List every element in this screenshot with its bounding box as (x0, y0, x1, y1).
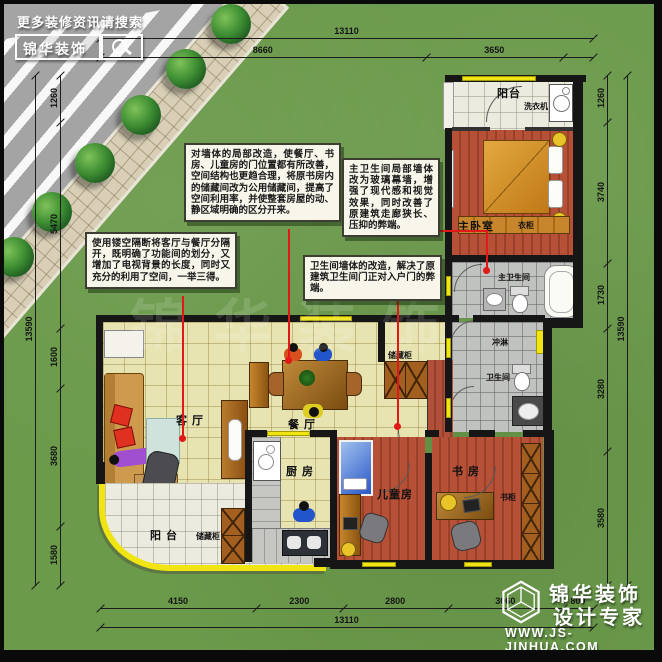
dim-label: 3650 (426, 45, 563, 55)
tv-wall (221, 400, 248, 479)
balcony-cabinet (221, 535, 245, 564)
dim-label: 13590 (24, 309, 34, 349)
bookcase-cell (521, 503, 541, 535)
tree (121, 95, 161, 135)
search-button[interactable] (101, 34, 143, 60)
header-brand: 锦华装饰 (23, 39, 87, 59)
wall (310, 430, 337, 437)
bed (483, 140, 550, 214)
wall (573, 78, 583, 328)
leader-line (288, 229, 290, 360)
room-label-bookcase: 书柜 (500, 492, 516, 503)
dim-label: 3580 (596, 498, 606, 538)
room-label-shower: 冲淋 (492, 337, 508, 348)
dim-line (627, 75, 628, 586)
balcony-cabinet (221, 508, 245, 537)
frame-top (0, 0, 662, 4)
frame-bottom (0, 650, 662, 662)
room-label-storage-balcony: 储藏柜 (196, 531, 220, 542)
room-label-kitchen: 厨 房 (286, 463, 314, 479)
search-icon (112, 39, 127, 54)
dim-tick (31, 582, 39, 590)
bookcase-cell (521, 443, 541, 475)
dim-label: 8660 (100, 45, 426, 55)
fridge (253, 441, 281, 481)
dining-chair (268, 372, 284, 396)
room-label-washer: 洗衣机 (524, 101, 548, 112)
search-icon-handle (124, 48, 132, 55)
wall (445, 255, 583, 262)
dim-label: 3740 (596, 172, 606, 212)
kitchen-sink (282, 530, 328, 556)
dim-label: 4150 (100, 596, 256, 606)
dim-label: 13590 (616, 309, 626, 349)
kids-stool (341, 542, 356, 557)
leader-dot (179, 435, 186, 442)
dim-label: 1260 (49, 78, 59, 118)
dining-chair (346, 372, 362, 396)
wall (544, 430, 554, 567)
room-label-bath: 卫生间 (486, 372, 510, 383)
window-kids (362, 562, 396, 567)
dim-line (100, 57, 593, 58)
sideboard (249, 362, 269, 408)
nightstand (552, 132, 567, 147)
dim-label: 13110 (100, 26, 593, 36)
leader-dot (483, 267, 490, 274)
wall (245, 430, 267, 437)
annotation-box-3: 主卫生间局部墙体改为玻璃幕墙，增强了现代感和视觉效果，同时改善了原建筑走廊狭长、… (342, 158, 440, 237)
storage-cabinet (384, 361, 407, 399)
dim-label: 3680 (49, 436, 59, 476)
kitchen-slider (267, 431, 310, 436)
wall (473, 315, 545, 322)
leader-dot (394, 423, 401, 430)
person-kitchen (293, 508, 315, 522)
dim-tick (56, 582, 64, 590)
table-plant (299, 370, 315, 386)
storage-cabinet (405, 361, 428, 399)
wall (445, 128, 452, 262)
room-label-master-bedroom: 主卧室 (458, 218, 494, 234)
room-label-study: 书 房 (452, 463, 480, 479)
dim-line (35, 75, 36, 586)
header-tagline: 更多装修资讯请搜索 (17, 12, 143, 31)
leader-line (436, 230, 487, 232)
leader-dot (285, 357, 292, 364)
dim-line (60, 75, 61, 586)
toilet (514, 372, 530, 391)
bookcase-cell (521, 473, 541, 505)
door-panel (446, 398, 451, 418)
pillow (548, 180, 563, 208)
room-label-master-bath: 主卫生间 (498, 272, 530, 283)
window-balcony-top (462, 76, 536, 81)
dining-table (282, 360, 348, 410)
room-label-kids: 儿童房 (377, 486, 413, 502)
ledge (443, 82, 454, 130)
leader-line (486, 230, 488, 270)
room-label-balcony-top: 阳台 (497, 85, 521, 101)
annotation-box-1: 对墙体的局部改造，使餐厅、书房、儿童房的门位置都有所改善，空间结构也更趋合理，将… (184, 143, 341, 222)
leader-line (397, 297, 399, 426)
wall (469, 430, 495, 437)
wall (425, 430, 439, 437)
wall (425, 453, 432, 562)
sink-pedestal (483, 288, 506, 311)
pillow (548, 146, 563, 174)
tree (166, 49, 206, 89)
wall (96, 322, 103, 470)
pillow-red (113, 426, 136, 449)
dim-label: 1580 (49, 535, 59, 575)
room-label-living: 客 厅 (176, 412, 204, 428)
wall (96, 462, 105, 484)
dim-label: 1260 (596, 78, 606, 118)
study-stool (440, 494, 457, 511)
wall (543, 322, 552, 437)
washing-machine (549, 84, 573, 122)
vanity (512, 396, 544, 426)
kids-bed (339, 440, 373, 496)
tree (75, 143, 115, 183)
room-label-balcony-bottom: 阳 台 (150, 527, 178, 543)
dim-label: 2800 (343, 596, 448, 606)
wall (330, 437, 337, 562)
dim-line (607, 75, 608, 586)
balcony-divider (452, 127, 490, 131)
window-study (464, 562, 492, 567)
leader-line (182, 296, 184, 438)
floor-plan-poster: 1311086603650415023002800306080013110126… (0, 0, 662, 662)
dim-label: 3280 (596, 369, 606, 409)
frame-left (0, 0, 4, 662)
frame-right (654, 0, 662, 662)
wall (245, 437, 252, 562)
toilet (512, 294, 528, 313)
balcony-divider (525, 127, 573, 131)
dim-label: 2300 (256, 596, 342, 606)
brand-box: 锦华装饰 (15, 34, 101, 60)
footer-logo-icon (499, 580, 543, 624)
annotation-box-2: 使用镂空隔断将客厅与餐厅分隔开，既明确了功能间的划分，又增加了电视背景的长度，同… (85, 232, 237, 289)
dim-label: 5470 (49, 204, 59, 244)
dim-line (100, 38, 593, 39)
wall (523, 430, 545, 437)
annotation-box-4: 卫生间墙体的改造，解决了原建筑卫生间门正对入户门的弊端。 (303, 255, 442, 301)
dim-label: 1730 (596, 275, 606, 315)
room-label-wardrobe: 衣柜 (518, 220, 534, 231)
dim-label: 1600 (49, 337, 59, 377)
